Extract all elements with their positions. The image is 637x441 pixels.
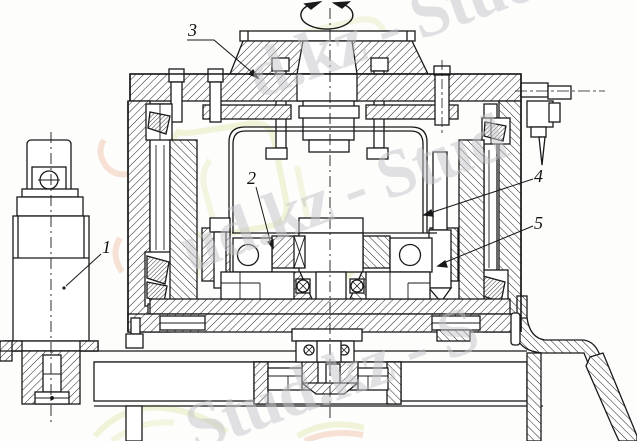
svg-text:5: 5 [534,213,543,233]
svg-text:1: 1 [102,237,111,257]
svg-text:4: 4 [534,166,543,186]
svg-text:3: 3 [187,20,197,40]
